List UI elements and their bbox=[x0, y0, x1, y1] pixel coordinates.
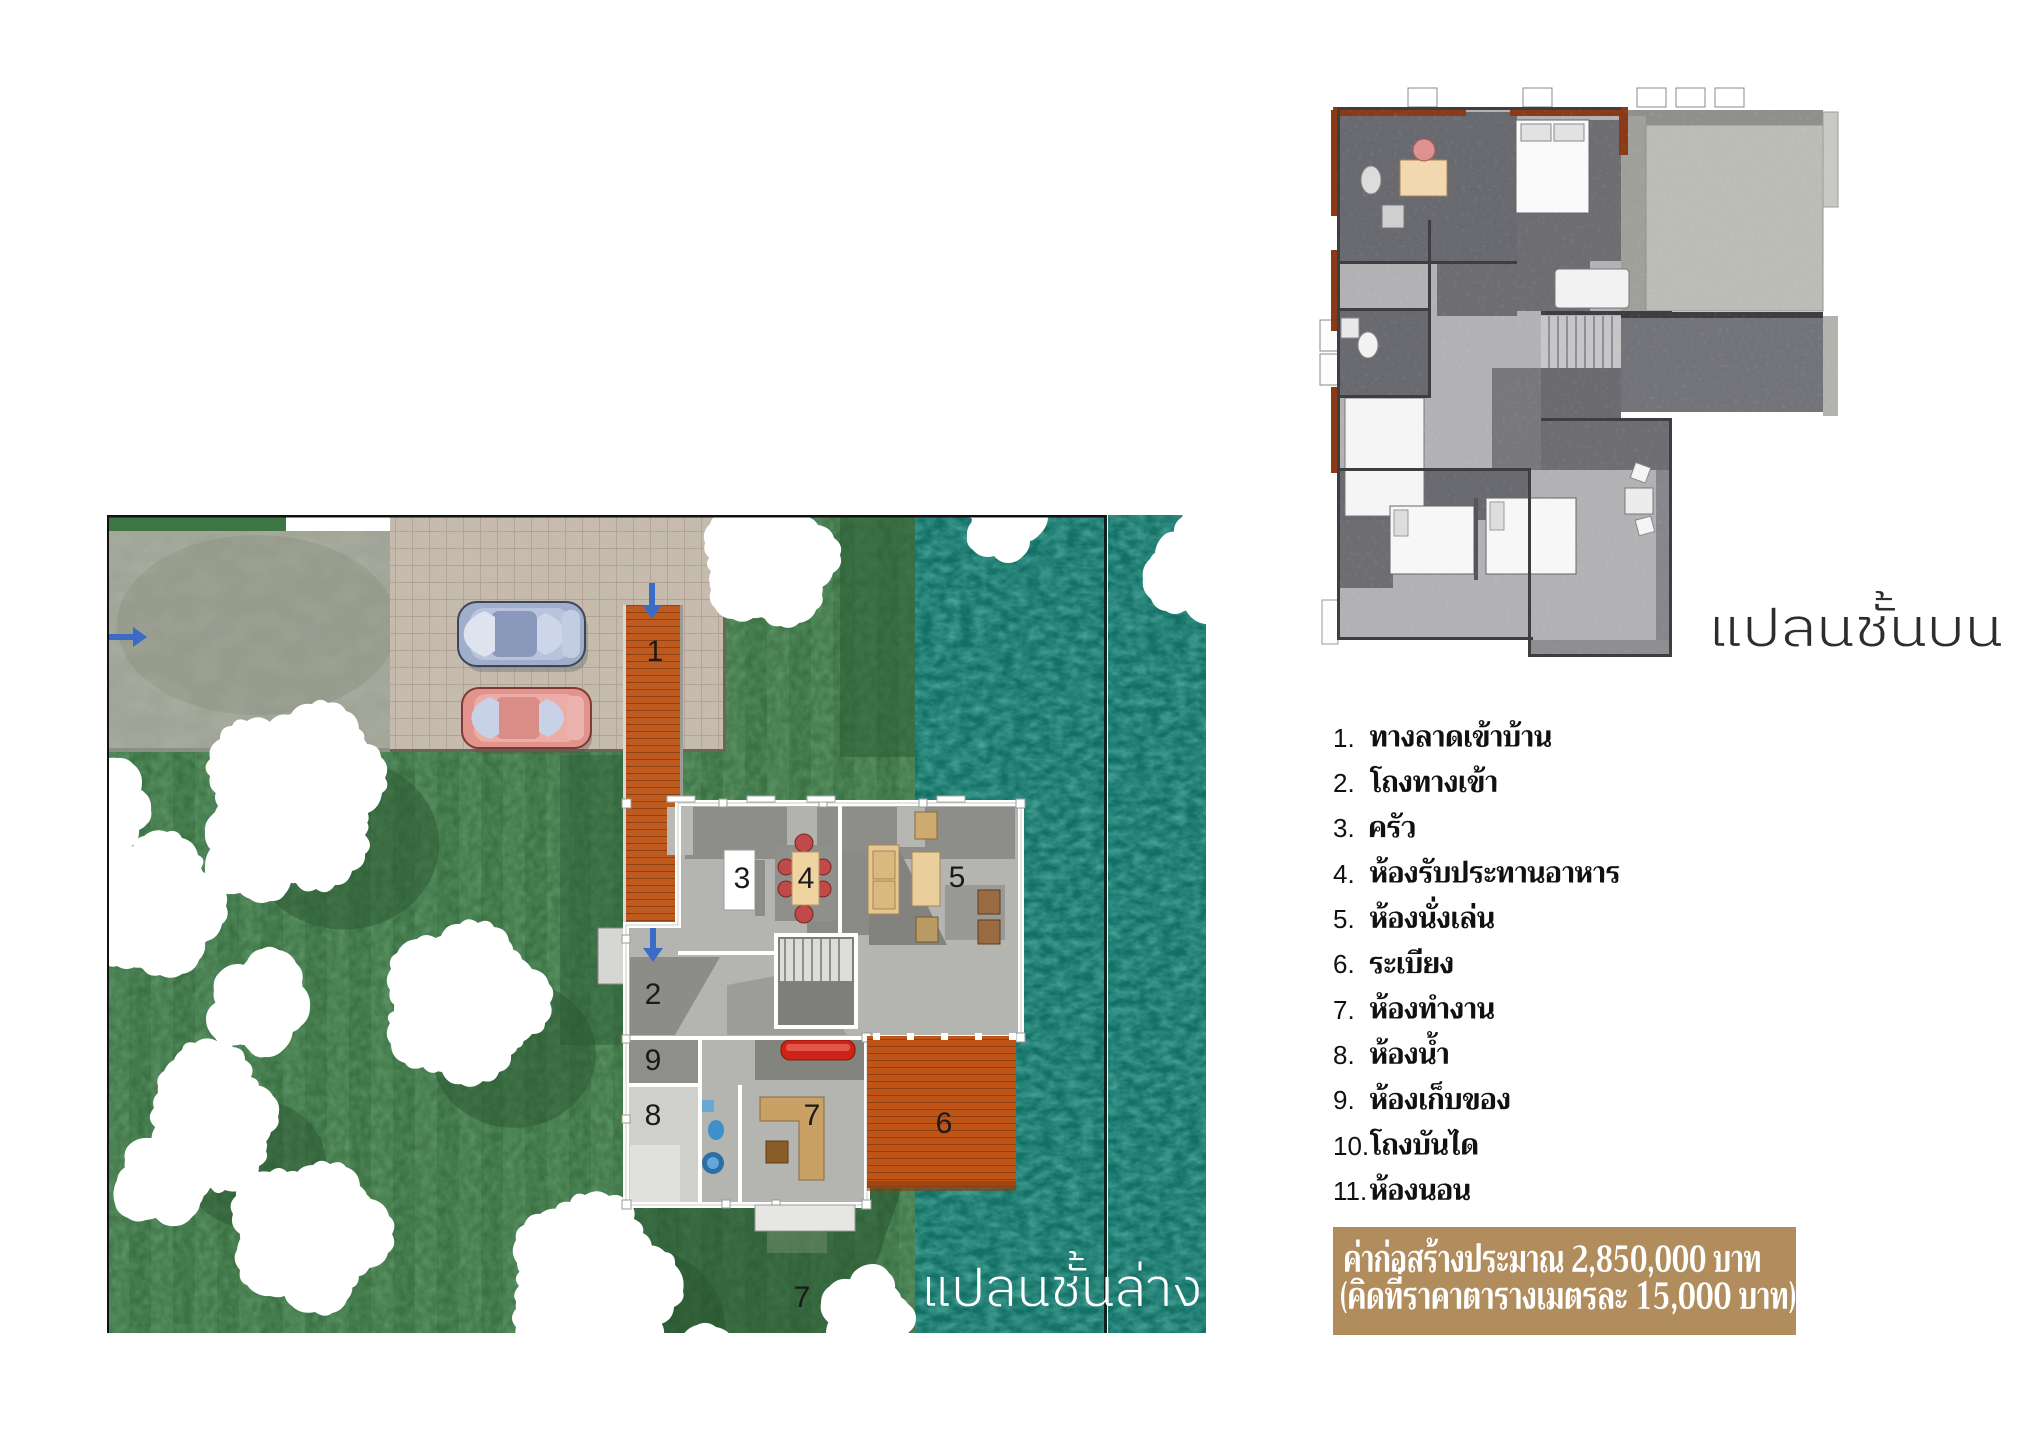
svg-text:8.: 8. bbox=[1333, 1040, 1355, 1070]
svg-text:2.: 2. bbox=[1333, 768, 1355, 798]
svg-text:10.: 10. bbox=[1333, 1131, 1369, 1161]
svg-text:1.: 1. bbox=[1333, 723, 1355, 753]
svg-text:3.: 3. bbox=[1333, 813, 1355, 843]
svg-text:11.: 11. bbox=[1333, 1176, 1367, 1206]
svg-text:4.: 4. bbox=[1333, 859, 1355, 889]
svg-text:6.: 6. bbox=[1333, 949, 1355, 979]
svg-text:9.: 9. bbox=[1333, 1085, 1355, 1115]
svg-text:7.: 7. bbox=[1333, 995, 1355, 1025]
svg-text:5.: 5. bbox=[1333, 904, 1355, 934]
